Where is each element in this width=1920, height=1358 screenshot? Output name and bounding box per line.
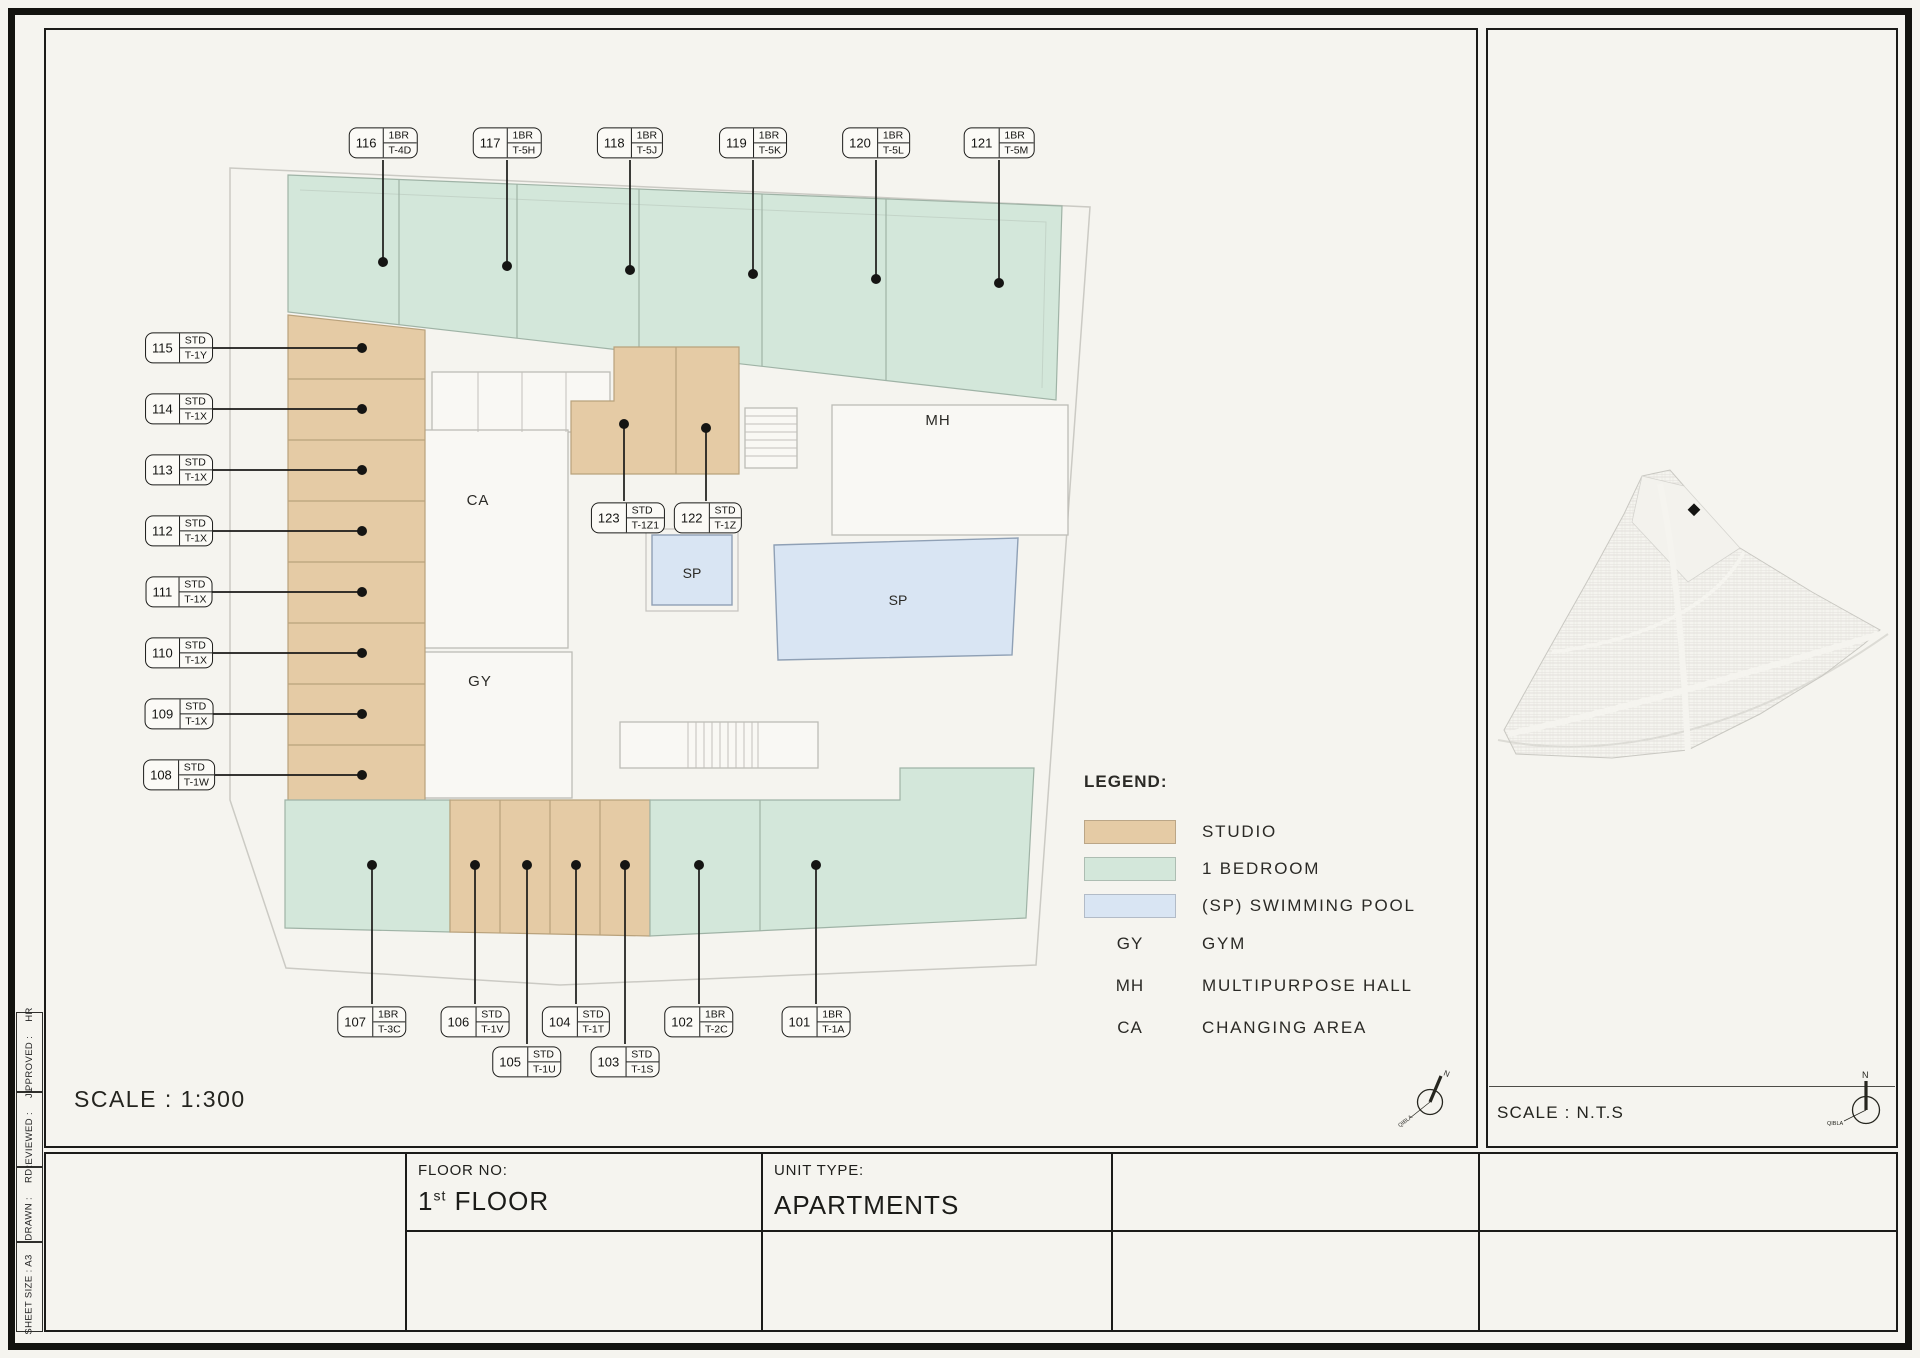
stair-lower bbox=[620, 722, 818, 768]
band-left-studio bbox=[288, 315, 425, 806]
unit-label-113: 113STDT-1X bbox=[145, 454, 213, 485]
stair-upper bbox=[745, 408, 797, 468]
floor-no-value: 1st FLOOR bbox=[418, 1186, 549, 1217]
sidebar-approved: APPROVED :HR bbox=[16, 1012, 43, 1092]
unit-label-121: 1211BRT-5M bbox=[964, 127, 1035, 158]
pool-swatch bbox=[1084, 894, 1176, 918]
sidebar-sheet-size: SHEET SIZE : A3 bbox=[16, 1242, 43, 1332]
unit-label-114: 114STDT-1X bbox=[145, 393, 213, 424]
key-plan-map bbox=[1492, 462, 1892, 772]
room-label-gy: GY bbox=[468, 673, 492, 690]
unit-label-107: 1071BRT-3C bbox=[337, 1006, 406, 1037]
room-label-sp-large: SP bbox=[889, 592, 908, 608]
legend-item-ca: CA CHANGING AREA bbox=[1084, 1018, 1367, 1038]
unit-label-101: 1011BRT-1A bbox=[782, 1006, 851, 1037]
legend-item-gym: GY GYM bbox=[1084, 934, 1246, 954]
floor-no-label: FLOOR NO: bbox=[418, 1162, 508, 1179]
north-label: N bbox=[1862, 1070, 1869, 1080]
unit-label-119: 1191BRT-5K bbox=[719, 127, 787, 158]
legend-item-studio: STUDIO bbox=[1084, 820, 1277, 844]
scale-side: SCALE : N.T.S bbox=[1497, 1103, 1624, 1123]
cluster-middle-studio bbox=[571, 347, 739, 474]
studio-swatch bbox=[1084, 820, 1176, 844]
unit-label-111: 111STDT-1X bbox=[146, 576, 213, 607]
room-label-mh: MH bbox=[925, 412, 950, 429]
unit-type-label: UNIT TYPE: bbox=[774, 1162, 864, 1179]
sidebar-drawn: DRAWN :RD bbox=[16, 1167, 43, 1242]
room-label-sp-small: SP bbox=[683, 565, 702, 581]
unit-label-104: 104STDT-1T bbox=[542, 1006, 610, 1037]
unit-label-122: 122STDT-1Z bbox=[674, 502, 742, 533]
pools bbox=[646, 529, 1018, 660]
legend-item-pool: (SP) SWIMMING POOL bbox=[1084, 894, 1416, 918]
room-label-ca: CA bbox=[467, 492, 490, 509]
north-qibla-compass-main: N QIBLA bbox=[1397, 1069, 1451, 1129]
drawing-sheet: CA GY MH SP SP N QIBLA LEGEND: STUDIO 1 … bbox=[0, 0, 1920, 1358]
unit-label-110: 110STDT-1X bbox=[145, 637, 213, 668]
unit-label-102: 1021BRT-2C bbox=[664, 1006, 733, 1037]
unit-label-117: 1171BRT-5H bbox=[473, 127, 542, 158]
legend-title: LEGEND: bbox=[1084, 772, 1168, 792]
unit-label-106: 106STDT-1V bbox=[441, 1006, 510, 1037]
unit-label-123: 123STDT-1Z1 bbox=[591, 502, 665, 533]
legend-item-1bedroom: 1 BEDROOM bbox=[1084, 857, 1320, 881]
unit-label-116: 1161BRT-4D bbox=[349, 127, 418, 158]
one-bedroom-swatch bbox=[1084, 857, 1176, 881]
unit-label-108: 108STDT-1W bbox=[143, 759, 215, 790]
north-label: N bbox=[1442, 1069, 1451, 1080]
north-qibla-compass-side: N QIBLA bbox=[1826, 1068, 1896, 1143]
qibla-label: QIBLA bbox=[1827, 1121, 1844, 1127]
unit-label-109: 109STDT-1X bbox=[145, 698, 214, 729]
scale-main: SCALE : 1:300 bbox=[74, 1086, 246, 1113]
unit-type-value: APARTMENTS bbox=[774, 1190, 959, 1221]
qibla-label: QIBLA bbox=[1397, 1114, 1414, 1129]
unit-label-112: 112STDT-1X bbox=[145, 515, 213, 546]
unit-label-103: 103STDT-1S bbox=[591, 1046, 660, 1077]
unit-label-115: 115STDT-1Y bbox=[145, 332, 213, 363]
legend-item-mh: MH MULTIPURPOSE HALL bbox=[1084, 976, 1413, 996]
unit-label-120: 1201BRT-5L bbox=[842, 127, 910, 158]
title-block bbox=[44, 1152, 1898, 1332]
unit-label-105: 105STDT-1U bbox=[492, 1046, 561, 1077]
sidebar-reviewed: REVIEWED :JL bbox=[16, 1092, 43, 1167]
unit-label-118: 1181BRT-5J bbox=[597, 127, 663, 158]
